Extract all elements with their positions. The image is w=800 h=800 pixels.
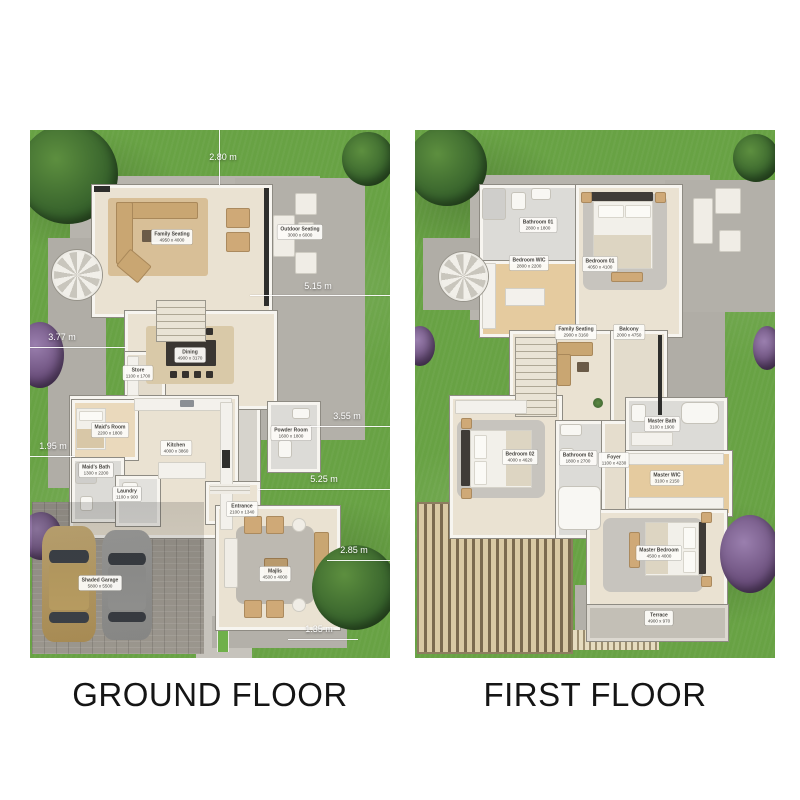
first-floor-title: FIRST FLOOR xyxy=(415,676,775,714)
dimension-line xyxy=(250,295,390,296)
ground-floor-plan: Family Seating4950 x 4000Outdoor Seating… xyxy=(30,130,390,658)
dimension-annotations: 2.80 m5.15 m3.77 m3.55 m1.95 m5.25 m2.85… xyxy=(30,130,390,658)
dimension-line xyxy=(310,426,390,427)
dimension-line xyxy=(288,639,358,640)
dimension-text: 3.55 m xyxy=(333,411,361,421)
dimension-line xyxy=(327,560,390,561)
dimension-line xyxy=(258,489,390,490)
dimension-text: 1.95 m xyxy=(39,441,67,451)
dimension-line xyxy=(30,456,75,457)
dimension-annotations xyxy=(415,130,775,658)
dimension-text: 5.25 m xyxy=(310,474,338,484)
dimension-text: 3.77 m xyxy=(48,332,76,342)
floor-plan-sheet: Family Seating4950 x 4000Outdoor Seating… xyxy=(0,0,800,800)
dimension-text: 2.85 m xyxy=(340,545,368,555)
dimension-text: 2.80 m xyxy=(209,152,237,162)
ground-floor-title: GROUND FLOOR xyxy=(30,676,390,714)
first-floor-plan: Bathroom 012800 x 1800Bedroom WIC2800 x … xyxy=(415,130,775,658)
dimension-text: 5.15 m xyxy=(304,281,332,291)
dimension-line xyxy=(30,347,126,348)
dimension-text: 1.35 m xyxy=(305,624,333,634)
